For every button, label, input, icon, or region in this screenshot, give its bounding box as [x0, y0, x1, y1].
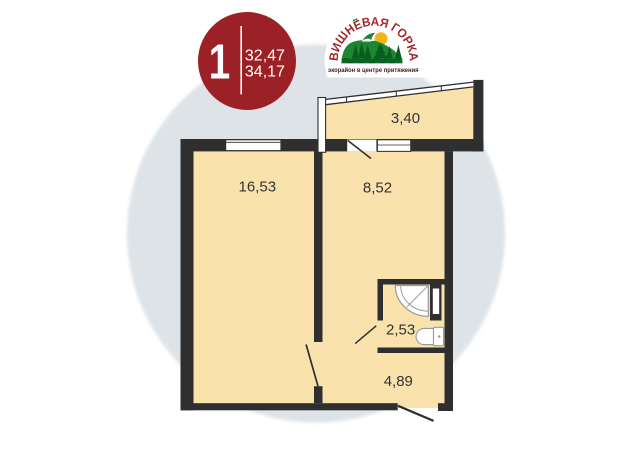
svg-text:2,53: 2,53 — [386, 322, 415, 339]
svg-text:3,40: 3,40 — [391, 110, 420, 127]
svg-text:34,17: 34,17 — [245, 64, 285, 81]
svg-text:32,47: 32,47 — [245, 48, 285, 65]
svg-text:16,53: 16,53 — [239, 178, 277, 195]
svg-text:экорайон в центре притяжения: экорайон в центре притяжения — [328, 67, 419, 74]
svg-text:1: 1 — [209, 35, 230, 90]
svg-text:4,89: 4,89 — [384, 373, 413, 390]
svg-text:8,52: 8,52 — [363, 180, 392, 197]
